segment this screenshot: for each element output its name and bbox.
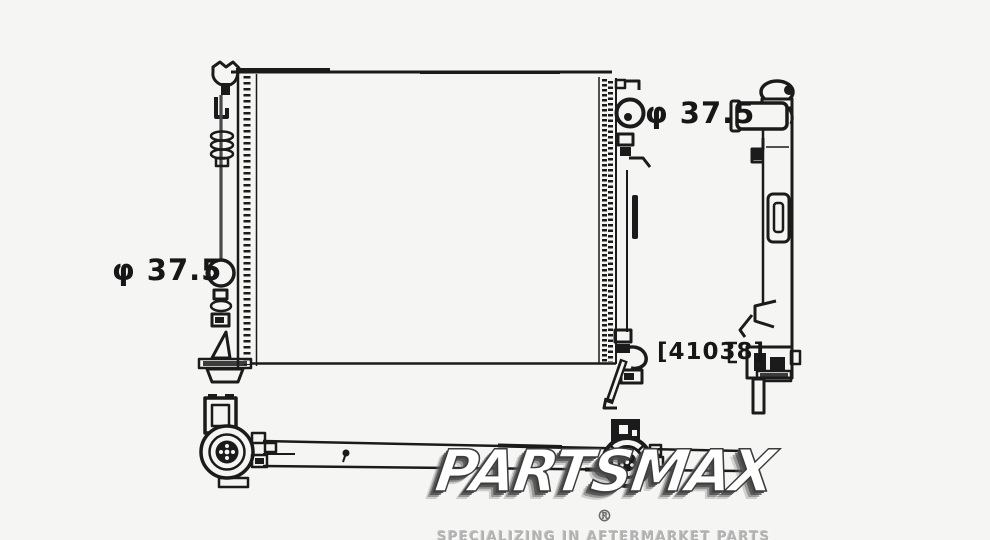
- diameter-label-top-right: φ 37.5: [645, 96, 755, 130]
- side-foot: [753, 379, 764, 413]
- right-tank: [599, 77, 616, 364]
- top-right-port-circle: [617, 100, 644, 127]
- side-mount-slot: [768, 194, 789, 242]
- lower-left-strut: [212, 332, 230, 358]
- left-tank-fittings: [199, 62, 251, 382]
- part-number-label: [41038]: [657, 339, 765, 365]
- left-tank: [238, 73, 257, 367]
- diameter-label-left: φ 37.5: [112, 253, 222, 287]
- upper-left-bracket: [213, 62, 239, 86]
- bottom-cross-tube: [263, 441, 744, 471]
- bottom-right-fitting: [603, 419, 663, 486]
- radiator-bottom-view: [201, 394, 744, 487]
- lower-left-foot: [207, 369, 243, 382]
- side-lower-bracket: [755, 301, 776, 327]
- radiator-front-view: [199, 62, 650, 408]
- diagram-canvas: φ 37.5 φ 37.5 [41038] PARTSMAX® SPECIALI…: [0, 0, 990, 540]
- right-tank-fittings: [604, 80, 650, 408]
